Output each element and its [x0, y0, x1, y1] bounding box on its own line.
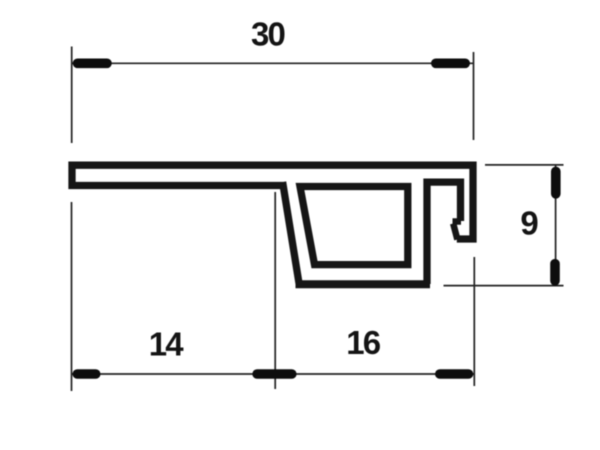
svg-text:14: 14 — [149, 325, 185, 362]
svg-text:30: 30 — [251, 16, 285, 53]
svg-text:9: 9 — [520, 205, 538, 242]
svg-text:16: 16 — [346, 324, 381, 361]
